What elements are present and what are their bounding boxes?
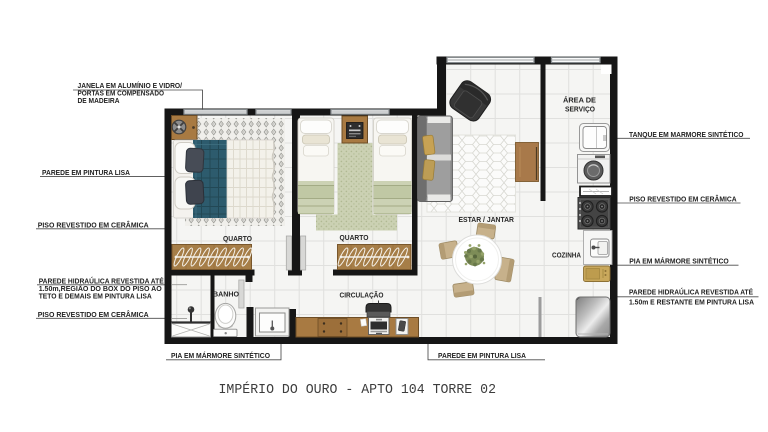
svg-text:QUARTO: QUARTO	[223, 234, 252, 243]
svg-text:CIRCULAÇÃO: CIRCULAÇÃO	[340, 291, 384, 300]
svg-text:COZINHA: COZINHA	[552, 251, 582, 260]
svg-text:ÁREA DE: ÁREA DE	[563, 96, 596, 105]
svg-text:PAREDE HIDRAÚLICA REVESTIDA AT: PAREDE HIDRAÚLICA REVESTIDA ATÉ	[629, 287, 753, 296]
svg-text:PAREDE EM PINTURA LISA: PAREDE EM PINTURA LISA	[438, 351, 527, 360]
svg-text:TANQUE EM MARMORE SINTÉTICO: TANQUE EM MARMORE SINTÉTICO	[629, 130, 744, 139]
svg-text:QUARTO: QUARTO	[340, 233, 369, 242]
svg-text:PISO REVESTIDO EM CERÂMICA: PISO REVESTIDO EM CERÂMICA	[38, 310, 150, 319]
svg-text:SERVIÇO: SERVIÇO	[565, 105, 595, 114]
svg-text:BANHO: BANHO	[213, 290, 239, 299]
svg-text:PIA EM MÁRMORE SINTÉTICO: PIA EM MÁRMORE SINTÉTICO	[629, 257, 729, 266]
svg-text:PAREDE EM PINTURA LISA: PAREDE EM PINTURA LISA	[42, 168, 131, 177]
svg-text:PIA EM MÁRMORE SINTÉTICO: PIA EM MÁRMORE SINTÉTICO	[171, 351, 270, 360]
svg-text:PISO REVESTIDO EM CERÂMICA: PISO REVESTIDO EM CERÂMICA	[629, 195, 737, 204]
svg-text:1.50m E RESTANTE EM PINTURA LI: 1.50m E RESTANTE EM PINTURA LISA	[629, 297, 755, 306]
svg-text:DE MADEIRA: DE MADEIRA	[78, 96, 121, 105]
svg-text:PISO REVESTIDO EM CERÂMICA: PISO REVESTIDO EM CERÂMICA	[38, 221, 150, 230]
svg-text:IMPÉRIO DO OURO - APTO 104 TOR: IMPÉRIO DO OURO - APTO 104 TORRE 02	[219, 382, 497, 398]
svg-text:TETO E DEMAIS EM PINTURA LISA: TETO E DEMAIS EM PINTURA LISA	[39, 292, 153, 301]
svg-text:ESTAR / JANTAR: ESTAR / JANTAR	[459, 215, 515, 224]
